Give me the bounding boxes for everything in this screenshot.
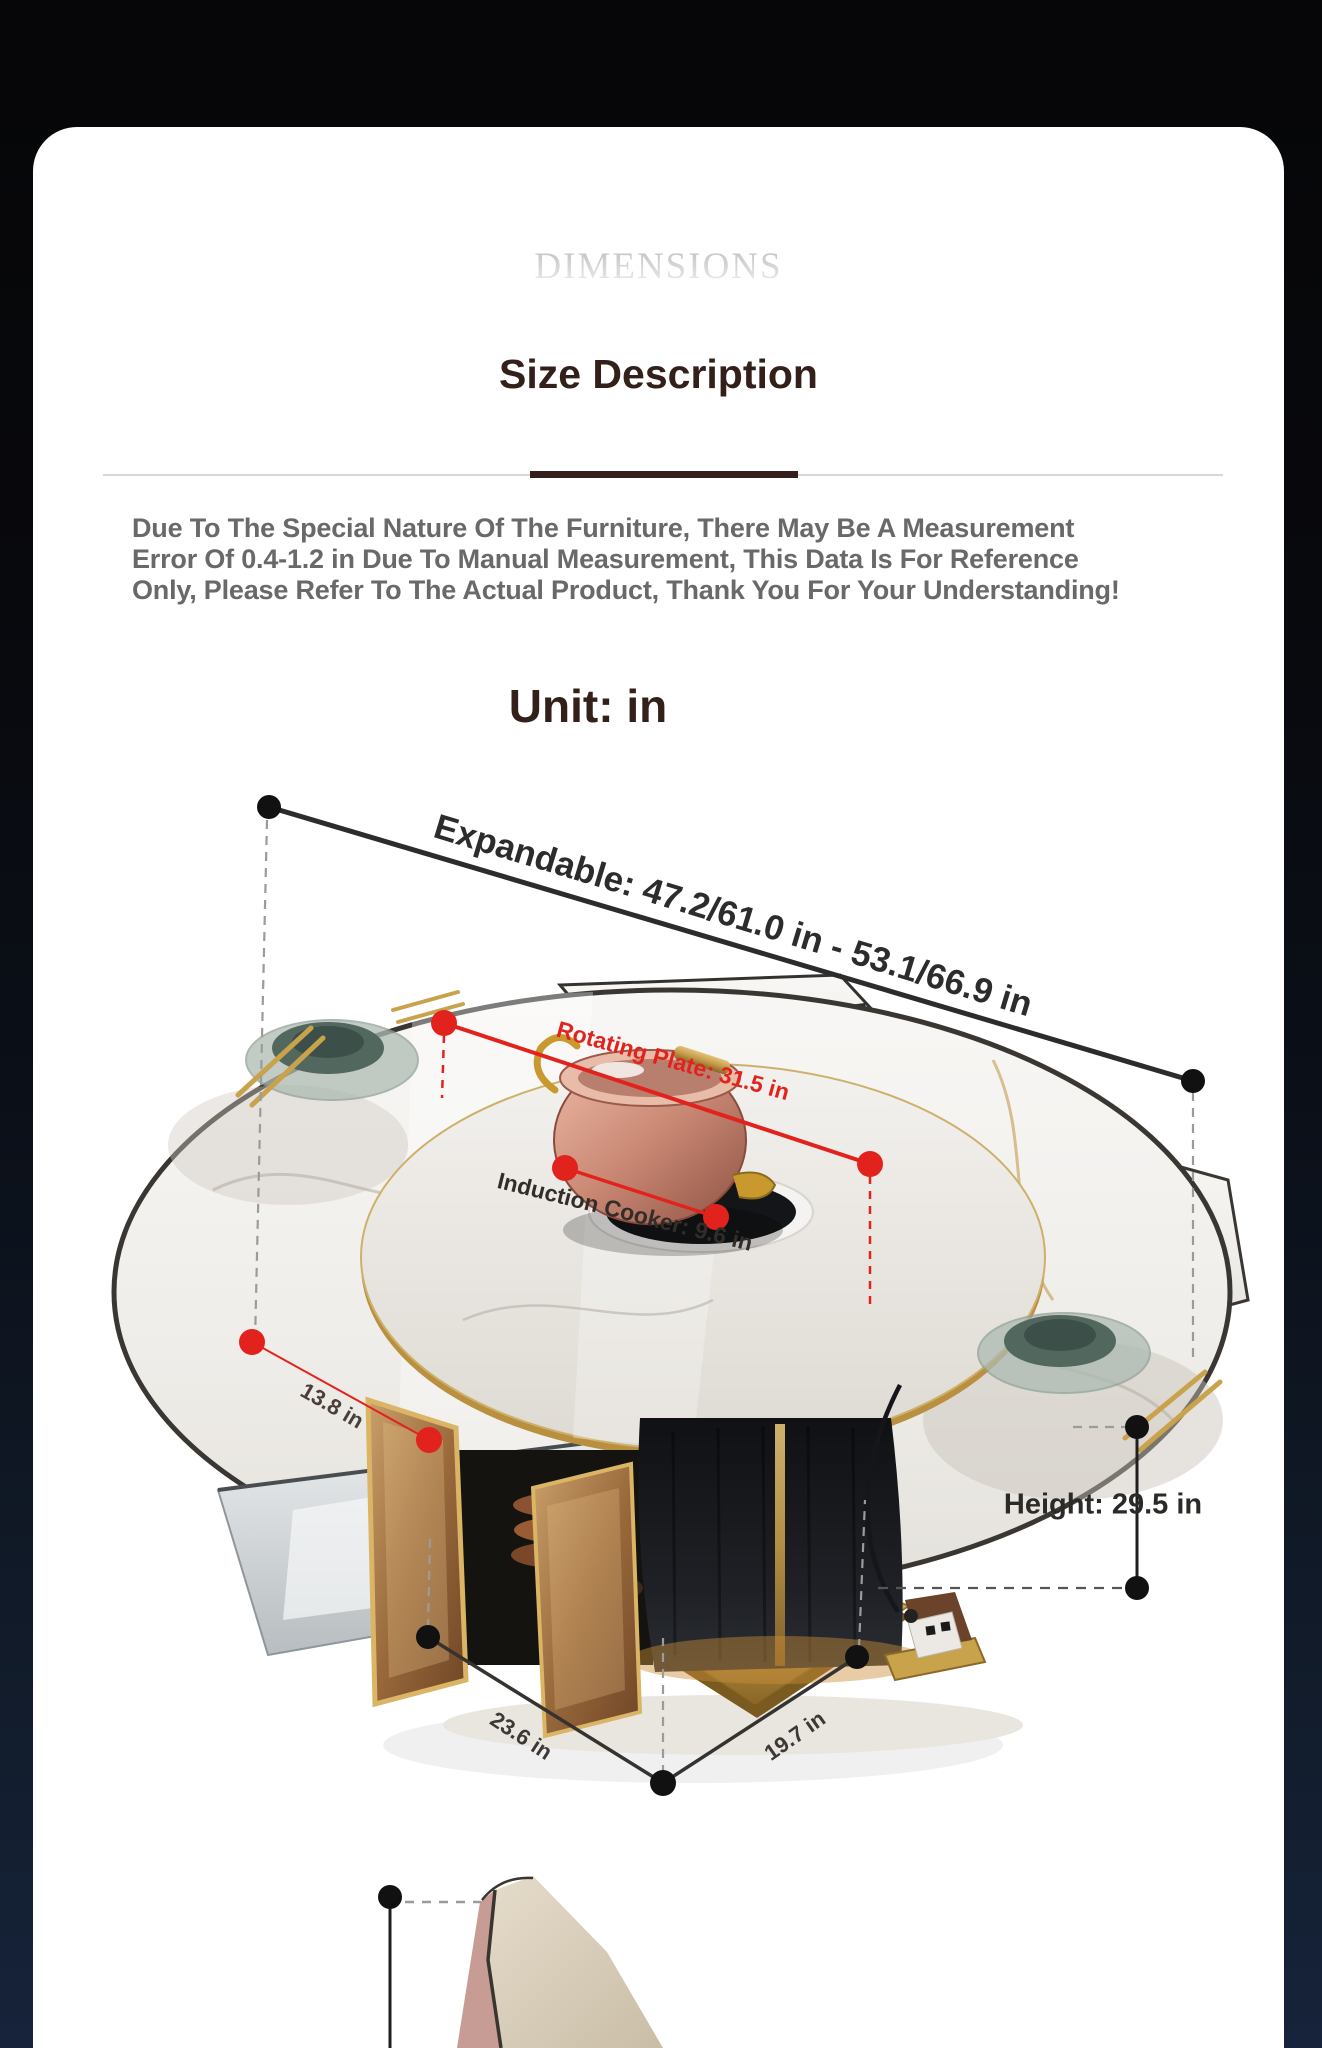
dining-chair: [457, 1876, 663, 2048]
section-divider: [103, 471, 1223, 479]
notice-line: Only, Please Refer To The Actual Product…: [132, 575, 1212, 606]
notice-line: Error Of 0.4-1.2 in Due To Manual Measur…: [132, 544, 1212, 575]
height-dimension-label: Height: 29.5 in: [1004, 1489, 1202, 1522]
page-title: Size Description: [33, 351, 1284, 398]
divider-accent: [530, 471, 798, 478]
measurement-notice: Due To The Special Nature Of The Furnitu…: [132, 513, 1212, 606]
notice-line: Due To The Special Nature Of The Furnitu…: [132, 513, 1212, 544]
unit-heading: Unit: in: [413, 679, 763, 733]
dimensions-watermark: DIMENSIONS: [33, 245, 1284, 288]
content-card: DIMENSIONS Size Description Due To The S…: [33, 127, 1284, 2048]
product-dimension-figure: Expandable: 47.2/61.0 in - 53.1/66.9 in …: [33, 760, 1284, 2048]
table-illustration: [33, 760, 1284, 2048]
product-size-page: { "header": { "watermark": "DIMENSIONS",…: [0, 0, 1322, 2048]
